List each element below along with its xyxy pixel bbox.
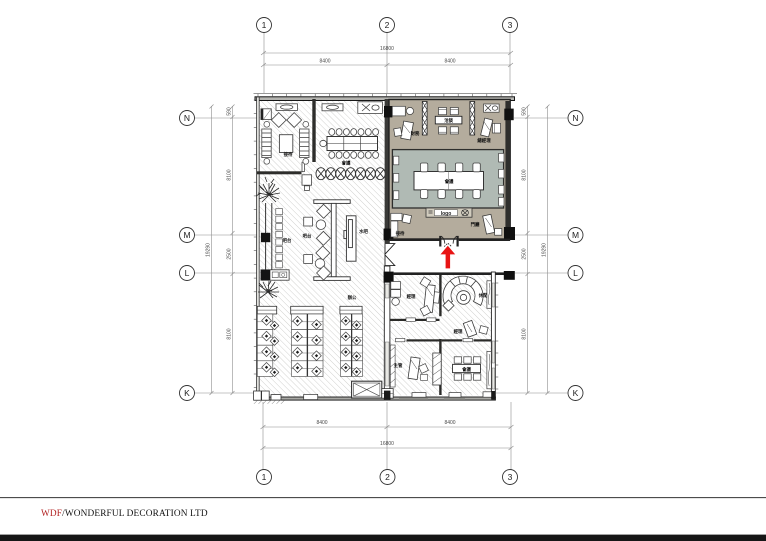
svg-text:接待: 接待: [283, 151, 293, 158]
svg-text:19290: 19290: [542, 243, 548, 257]
svg-text:2: 2: [385, 20, 390, 30]
svg-text:3: 3: [508, 472, 513, 482]
svg-text:水吧: 水吧: [358, 228, 368, 235]
svg-text:19290: 19290: [206, 243, 212, 257]
svg-text:2500: 2500: [522, 248, 528, 259]
svg-text:經理: 經理: [407, 293, 416, 300]
svg-text:16800: 16800: [380, 441, 394, 447]
svg-text:590: 590: [227, 107, 233, 116]
svg-text:財務: 財務: [410, 130, 420, 137]
svg-text:N: N: [572, 113, 578, 123]
svg-text:3: 3: [508, 20, 513, 30]
svg-text:WDF/WONDERFUL DECORATION LTD: WDF/WONDERFUL DECORATION LTD: [41, 509, 208, 519]
svg-text:8100: 8100: [227, 328, 233, 339]
svg-text:會議: 會議: [462, 366, 471, 373]
svg-text:吧台: 吧台: [283, 237, 292, 244]
svg-text:總經理: 總經理: [477, 137, 491, 144]
svg-text:M: M: [183, 230, 190, 240]
svg-text:洽談: 洽談: [444, 117, 453, 124]
svg-text:會議: 會議: [342, 160, 351, 167]
svg-text:590: 590: [522, 107, 528, 116]
svg-text:8100: 8100: [522, 169, 528, 180]
svg-text:8100: 8100: [227, 169, 233, 180]
svg-text:會議: 會議: [445, 178, 454, 185]
svg-text:經理: 經理: [454, 328, 463, 335]
svg-text:8400: 8400: [319, 59, 330, 65]
svg-text:2: 2: [385, 472, 390, 482]
svg-text:logo: logo: [441, 211, 452, 217]
svg-text:1: 1: [262, 472, 267, 482]
svg-text:K: K: [573, 388, 579, 398]
svg-text:16800: 16800: [380, 46, 394, 52]
svg-text:L: L: [185, 268, 190, 278]
svg-text:門廳: 門廳: [471, 221, 480, 228]
svg-text:接待: 接待: [395, 230, 405, 237]
svg-text:N: N: [184, 113, 190, 123]
svg-text:8400: 8400: [444, 59, 455, 65]
svg-text:K: K: [184, 388, 190, 398]
svg-text:辦公: 辦公: [348, 294, 357, 301]
svg-text:吧台: 吧台: [303, 233, 312, 240]
svg-text:8400: 8400: [316, 420, 327, 426]
svg-text:L: L: [573, 268, 578, 278]
svg-text:8400: 8400: [444, 420, 455, 426]
svg-text:主管: 主管: [394, 362, 403, 369]
svg-text:1: 1: [262, 20, 267, 30]
svg-text:8100: 8100: [522, 328, 528, 339]
svg-text:2500: 2500: [227, 248, 233, 259]
svg-text:休閒: 休閒: [478, 292, 488, 299]
svg-text:M: M: [572, 230, 579, 240]
